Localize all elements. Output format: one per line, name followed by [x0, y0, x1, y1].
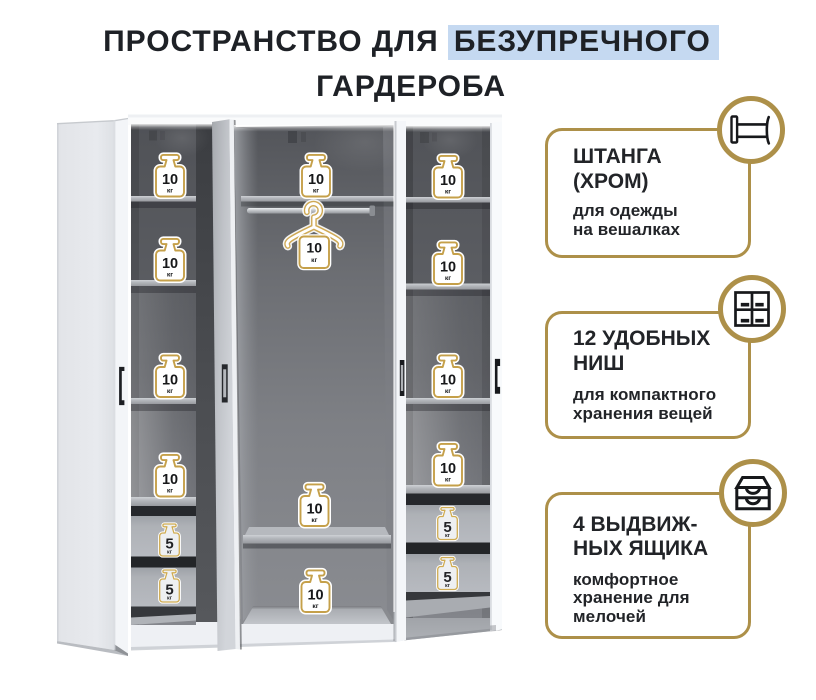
svg-text:кг: кг — [311, 257, 317, 264]
svg-text:10: 10 — [306, 240, 322, 256]
